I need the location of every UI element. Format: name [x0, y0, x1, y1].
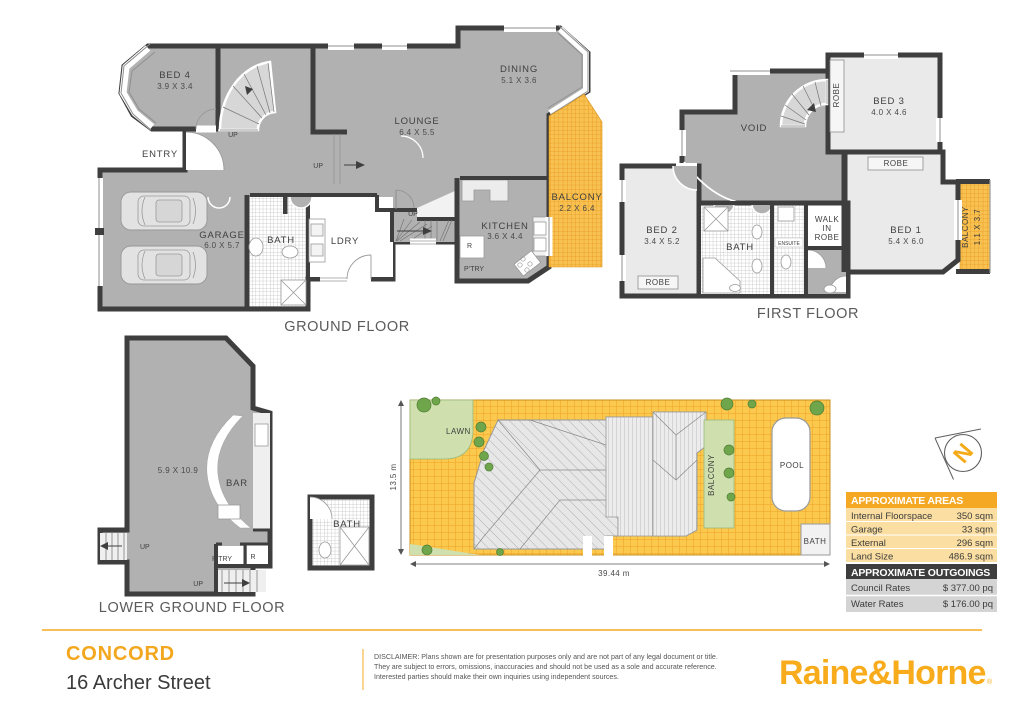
svg-text:WALK: WALK: [815, 215, 840, 224]
svg-text:They are subject to errors, om: They are subject to errors, omissions, i…: [374, 663, 717, 671]
svg-text:P’TRY: P’TRY: [212, 556, 232, 563]
svg-text:External: External: [851, 538, 886, 549]
svg-text:ROBE: ROBE: [815, 233, 840, 242]
svg-text:APPROXIMATE AREAS: APPROXIMATE AREAS: [851, 495, 963, 507]
svg-text:UP: UP: [140, 544, 150, 551]
svg-text:Garage: Garage: [851, 525, 883, 536]
svg-text:6.4 X 5.5: 6.4 X 5.5: [399, 128, 435, 137]
svg-text:UP: UP: [228, 132, 238, 139]
svg-text:BATH: BATH: [726, 242, 754, 253]
svg-text:APPROXIMATE OUTGOINGS: APPROXIMATE OUTGOINGS: [851, 567, 990, 579]
svg-text:GARAGE: GARAGE: [199, 230, 244, 241]
svg-text:ROBE: ROBE: [884, 159, 909, 168]
svg-text:5.4 X 6.0: 5.4 X 6.0: [888, 237, 924, 246]
svg-text:BAR: BAR: [226, 478, 248, 489]
svg-text:CONCORD: CONCORD: [66, 643, 175, 665]
svg-text:ROBE: ROBE: [832, 83, 841, 108]
svg-text:Interested parties should make: Interested parties should make their own…: [374, 673, 619, 681]
svg-text:39.44 m: 39.44 m: [598, 569, 630, 578]
svg-text:13.5 m: 13.5 m: [389, 464, 398, 491]
svg-text:DISCLAIMER: Plans shown are fo: DISCLAIMER: Plans shown are for presenta…: [374, 653, 718, 661]
svg-text:5.9 X 10.9: 5.9 X 10.9: [158, 466, 199, 475]
svg-text:LOUNGE: LOUNGE: [395, 116, 440, 127]
svg-text:R: R: [467, 243, 472, 250]
svg-text:®: ®: [987, 678, 993, 686]
svg-text:350 sqm: 350 sqm: [957, 511, 994, 522]
svg-text:BALCONY: BALCONY: [961, 206, 970, 248]
svg-text:POOL: POOL: [780, 461, 804, 470]
svg-text:1.1 X 3.7: 1.1 X 3.7: [973, 209, 982, 246]
svg-text:LAWN: LAWN: [446, 427, 471, 436]
svg-text:33 sqm: 33 sqm: [962, 525, 993, 536]
svg-text:UP: UP: [193, 581, 203, 588]
svg-text:BED 2: BED 2: [646, 225, 677, 236]
svg-text:GROUND FLOOR: GROUND FLOOR: [284, 319, 410, 335]
svg-text:BATH: BATH: [267, 235, 295, 246]
svg-text:BALCONY: BALCONY: [551, 192, 602, 203]
svg-text:4.0 X 4.6: 4.0 X 4.6: [871, 108, 907, 117]
svg-text:486.9 sqm: 486.9 sqm: [949, 552, 993, 563]
svg-text:BED 1: BED 1: [890, 225, 921, 236]
svg-text:Land Size: Land Size: [851, 552, 893, 563]
svg-text:3.6 X 4.4: 3.6 X 4.4: [487, 232, 523, 241]
svg-text:FIRST FLOOR: FIRST FLOOR: [757, 306, 859, 322]
svg-text:BATH: BATH: [804, 537, 827, 546]
svg-text:UP: UP: [313, 163, 323, 170]
svg-text:ENSUITE: ENSUITE: [778, 241, 800, 247]
svg-text:IN: IN: [823, 224, 832, 233]
svg-text:Water Rates: Water Rates: [851, 599, 904, 610]
svg-text:2.2 X 6.4: 2.2 X 6.4: [559, 204, 595, 213]
svg-text:$ 377.00 pq: $ 377.00 pq: [943, 583, 993, 594]
svg-text:BATH: BATH: [333, 519, 361, 530]
svg-text:3.4 X 5.2: 3.4 X 5.2: [644, 237, 680, 246]
svg-text:BED 3: BED 3: [873, 96, 904, 107]
svg-text:Raine&Horne: Raine&Horne: [779, 654, 986, 692]
svg-text:ENTRY: ENTRY: [142, 149, 178, 160]
svg-text:LOWER GROUND FLOOR: LOWER GROUND FLOOR: [99, 600, 285, 616]
svg-text:BED 4: BED 4: [159, 70, 190, 81]
svg-text:$ 176.00 pq: $ 176.00 pq: [943, 599, 993, 610]
svg-text:UP: UP: [408, 211, 418, 218]
svg-text:6.0 X 5.7: 6.0 X 5.7: [204, 241, 240, 250]
svg-text:VOID: VOID: [741, 123, 767, 134]
svg-text:296 sqm: 296 sqm: [957, 538, 994, 549]
svg-text:R: R: [250, 554, 255, 561]
svg-text:16 Archer Street: 16 Archer Street: [66, 672, 211, 694]
svg-text:LDRY: LDRY: [331, 236, 359, 247]
svg-text:Council Rates: Council Rates: [851, 583, 910, 594]
svg-text:KITCHEN: KITCHEN: [481, 221, 528, 232]
svg-text:BALCONY: BALCONY: [707, 454, 716, 496]
svg-text:P’TRY: P’TRY: [464, 266, 484, 273]
svg-text:3.9 X 3.4: 3.9 X 3.4: [157, 82, 193, 91]
svg-text:5.1 X 3.6: 5.1 X 3.6: [501, 76, 537, 85]
svg-text:DINING: DINING: [500, 64, 538, 75]
svg-text:Internal Floorspace: Internal Floorspace: [851, 511, 932, 522]
svg-text:ROBE: ROBE: [646, 278, 671, 287]
